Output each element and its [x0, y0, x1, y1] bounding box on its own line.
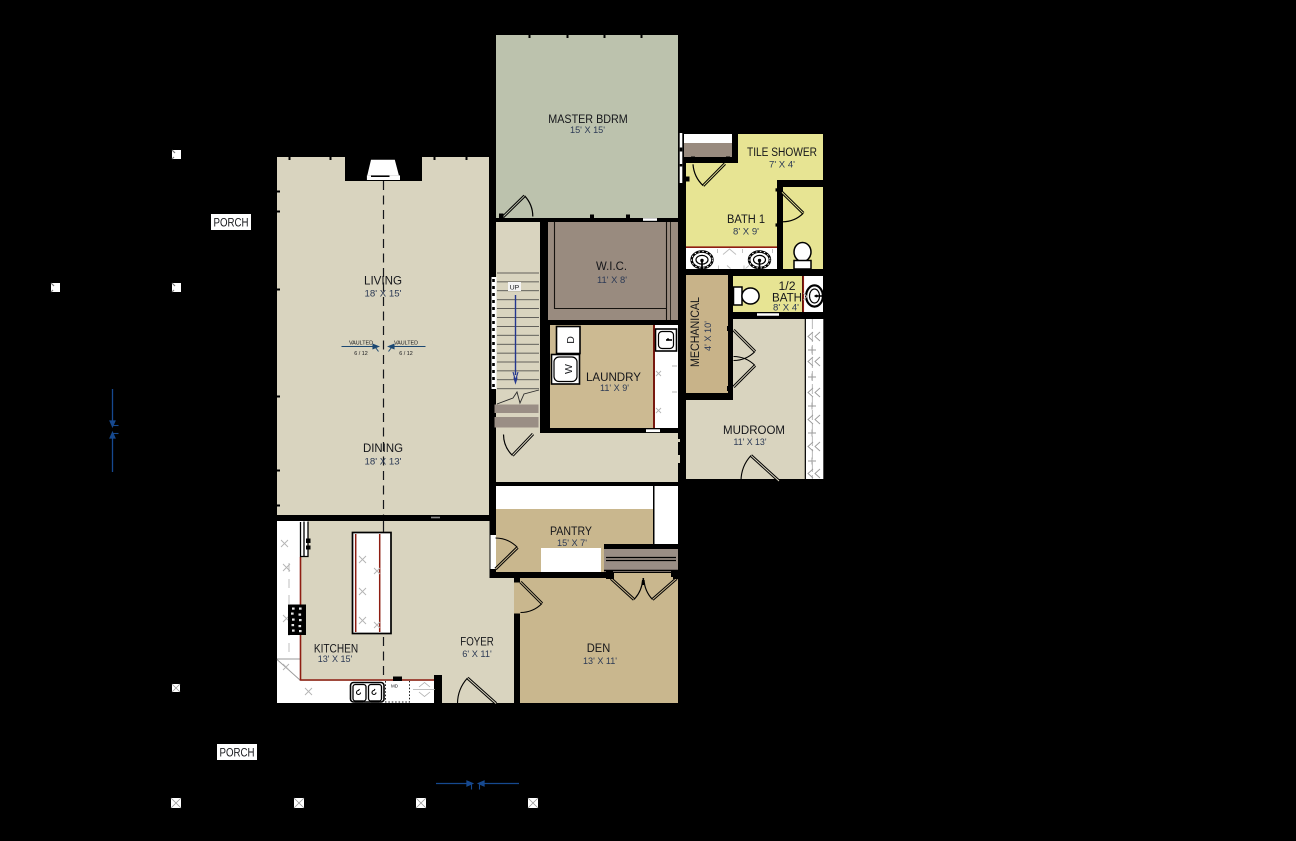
svg-text:8' X 4': 8' X 4' [773, 303, 799, 314]
svg-text:MUDROOM: MUDROOM [723, 423, 785, 437]
svg-text:PORCH: PORCH [220, 748, 255, 760]
svg-text:18' X 15': 18' X 15' [365, 289, 402, 300]
svg-text:13' X 11': 13' X 11' [583, 656, 617, 667]
svg-text:15' X 7': 15' X 7' [557, 538, 587, 549]
svg-text:6 / 12: 6 / 12 [399, 351, 413, 357]
svg-text:DEN: DEN [587, 641, 611, 655]
svg-text:VAULTED: VAULTED [394, 341, 418, 347]
svg-text:PANTRY: PANTRY [550, 524, 592, 538]
svg-text:13' X 15': 13' X 15' [318, 654, 353, 665]
svg-text:VAULTED: VAULTED [349, 341, 373, 347]
svg-text:11' X 8': 11' X 8' [597, 275, 627, 286]
svg-text:11' X 13': 11' X 13' [734, 437, 767, 448]
svg-text:LAUNDRY: LAUNDRY [586, 370, 641, 384]
svg-text:D: D [565, 336, 577, 344]
svg-text:TILE SHOWER: TILE SHOWER [747, 145, 817, 159]
svg-text:FOYER: FOYER [460, 635, 494, 649]
svg-text:MASTER BDRM: MASTER BDRM [548, 112, 628, 126]
svg-text:11' X 9': 11' X 9' [600, 383, 629, 394]
svg-text:LIVING: LIVING [364, 274, 402, 288]
svg-text:UP: UP [510, 285, 520, 292]
svg-text:BATH 1: BATH 1 [727, 212, 765, 226]
svg-text:W.I.C.: W.I.C. [596, 259, 627, 273]
svg-text:DINING: DINING [363, 441, 403, 455]
svg-text:8' X 9': 8' X 9' [733, 227, 759, 238]
svg-text:MD: MD [391, 684, 399, 689]
svg-text:4' X 10': 4' X 10' [703, 321, 714, 351]
svg-text:W: W [563, 364, 575, 374]
svg-text:6' X 11': 6' X 11' [462, 649, 492, 660]
svg-text:6 / 12: 6 / 12 [354, 351, 368, 357]
svg-text:7' X 4': 7' X 4' [769, 160, 795, 171]
svg-text:15' X 15': 15' X 15' [570, 125, 605, 136]
svg-text:MECHANICAL: MECHANICAL [688, 297, 702, 367]
svg-text:18' X 13': 18' X 13' [365, 457, 402, 468]
svg-text:PORCH: PORCH [214, 218, 249, 230]
